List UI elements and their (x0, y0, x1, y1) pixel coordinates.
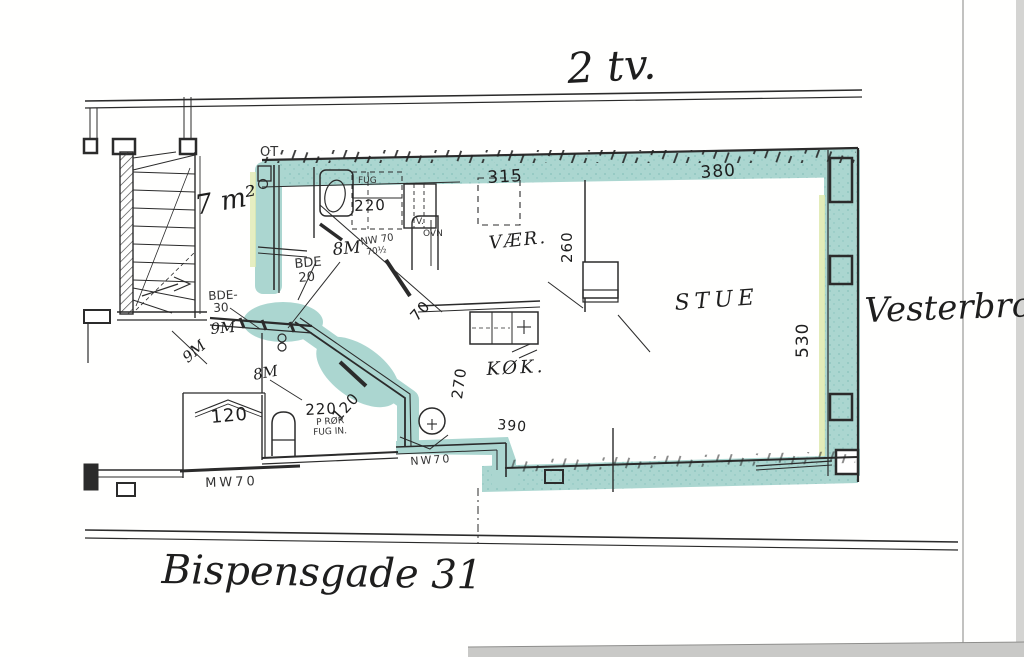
dim-315: 315 (487, 168, 523, 187)
dim-530: 530 (795, 323, 812, 358)
dim-220-top: 220 (354, 198, 386, 214)
room-label-stue: STUE (674, 287, 760, 315)
highlight-marker (243, 148, 860, 492)
street-label-right: Vesterbro (864, 288, 1024, 328)
mark-8m-upper: 8M (332, 240, 362, 259)
staircase (84, 97, 207, 363)
hall-fixture-label: OT (260, 146, 278, 159)
scanned-floor-plan: 2 tv. Bispensgade 31 Vesterbro STUE VÆR.… (0, 0, 1024, 657)
mark-bde30-2: 30 (213, 301, 229, 314)
chimney (583, 262, 618, 298)
door-tick-70 (386, 260, 410, 296)
dim-120-closet: 120 (210, 406, 249, 427)
dim-270: 270 (450, 367, 469, 400)
mark-9m-hall: 9M (210, 320, 236, 337)
oven-label: OVN (423, 230, 434, 239)
stair-arrow-icon (142, 277, 190, 296)
door-leaf (320, 224, 342, 240)
mark-8m-lower: 8M (252, 364, 279, 383)
wall-cap (84, 464, 98, 490)
page-edge-shadow (1016, 0, 1024, 657)
note-nw70-bottom: NW70 (410, 453, 452, 467)
floor-label: 2 tv. (566, 43, 657, 90)
dim-390: 390 (497, 418, 528, 435)
street-label-bottom: Bispensgade 31 (161, 550, 482, 596)
note-fug-in: FUG IN. (313, 427, 347, 438)
mark-bde20-2: 20 (298, 271, 316, 285)
exterior-walls (262, 148, 858, 483)
mark-bde20-1: BDE (294, 256, 322, 271)
room-label-koek: KØK. (486, 358, 546, 379)
oven-v-label: V. (416, 218, 424, 227)
note-mw70: MW70 (205, 475, 258, 490)
toilet (272, 412, 295, 456)
top-rule-lines (85, 90, 862, 108)
dim-260: 260 (560, 231, 575, 263)
highlight-yellow-strip (819, 195, 825, 460)
note-fug: FUG (358, 177, 377, 186)
dim-380: 380 (700, 163, 737, 182)
bedroom-elements (478, 178, 650, 352)
